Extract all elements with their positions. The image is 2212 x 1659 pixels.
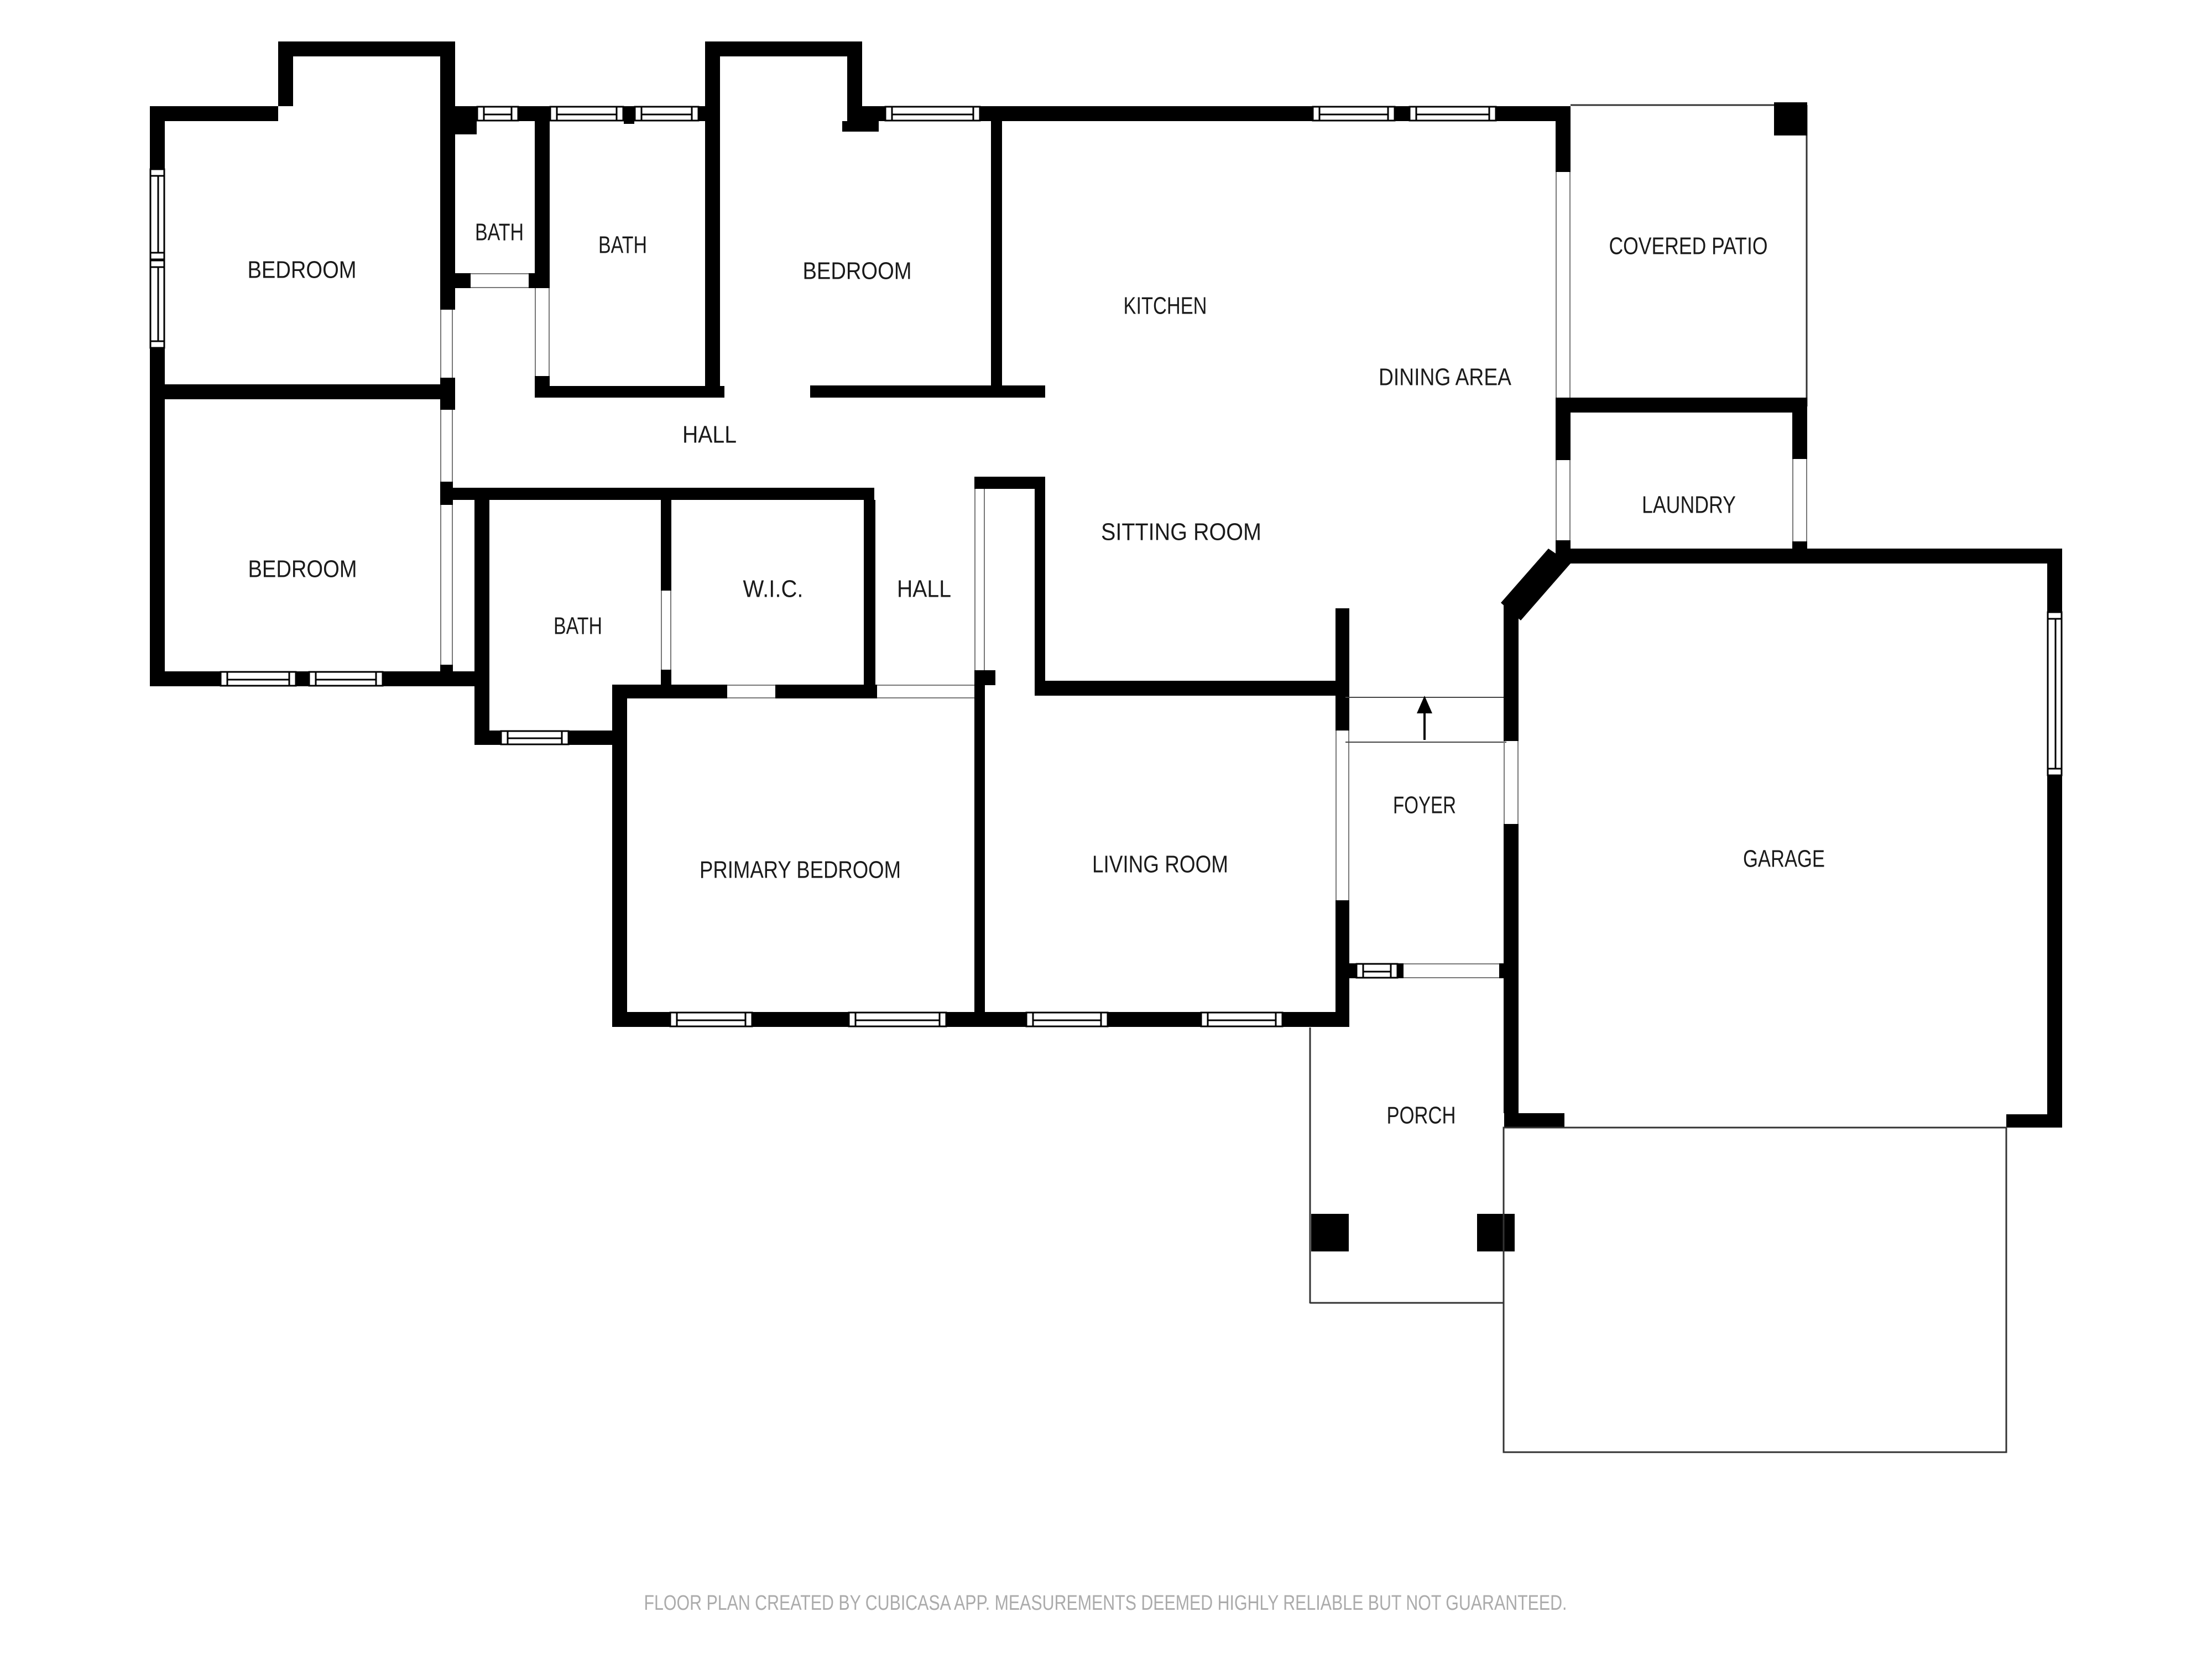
svg-text:BEDROOM: BEDROOM: [803, 258, 912, 285]
svg-text:DINING AREA: DINING AREA: [1379, 364, 1512, 391]
svg-text:FLOOR PLAN CREATED BY CUBICASA: FLOOR PLAN CREATED BY CUBICASA APP. MEAS…: [644, 1592, 1567, 1615]
svg-text:HALL: HALL: [682, 421, 737, 448]
svg-text:PORCH: PORCH: [1387, 1102, 1456, 1129]
svg-text:COVERED PATIO: COVERED PATIO: [1609, 233, 1768, 260]
svg-text:GARAGE: GARAGE: [1743, 846, 1825, 873]
svg-text:BATH: BATH: [554, 613, 602, 640]
svg-text:LIVING ROOM: LIVING ROOM: [1092, 851, 1228, 878]
svg-text:W.I.C.: W.I.C.: [743, 576, 804, 603]
svg-text:BATH: BATH: [475, 219, 524, 246]
svg-text:FOYER: FOYER: [1393, 792, 1456, 819]
svg-text:BATH: BATH: [598, 232, 647, 259]
svg-text:LAUNDRY: LAUNDRY: [1642, 492, 1736, 519]
svg-text:PRIMARY BEDROOM: PRIMARY BEDROOM: [700, 857, 901, 884]
svg-text:BEDROOM: BEDROOM: [248, 556, 357, 583]
svg-text:SITTING ROOM: SITTING ROOM: [1101, 519, 1261, 546]
svg-text:KITCHEN: KITCHEN: [1124, 293, 1207, 320]
svg-text:BEDROOM: BEDROOM: [248, 257, 357, 284]
svg-text:HALL: HALL: [897, 576, 951, 603]
